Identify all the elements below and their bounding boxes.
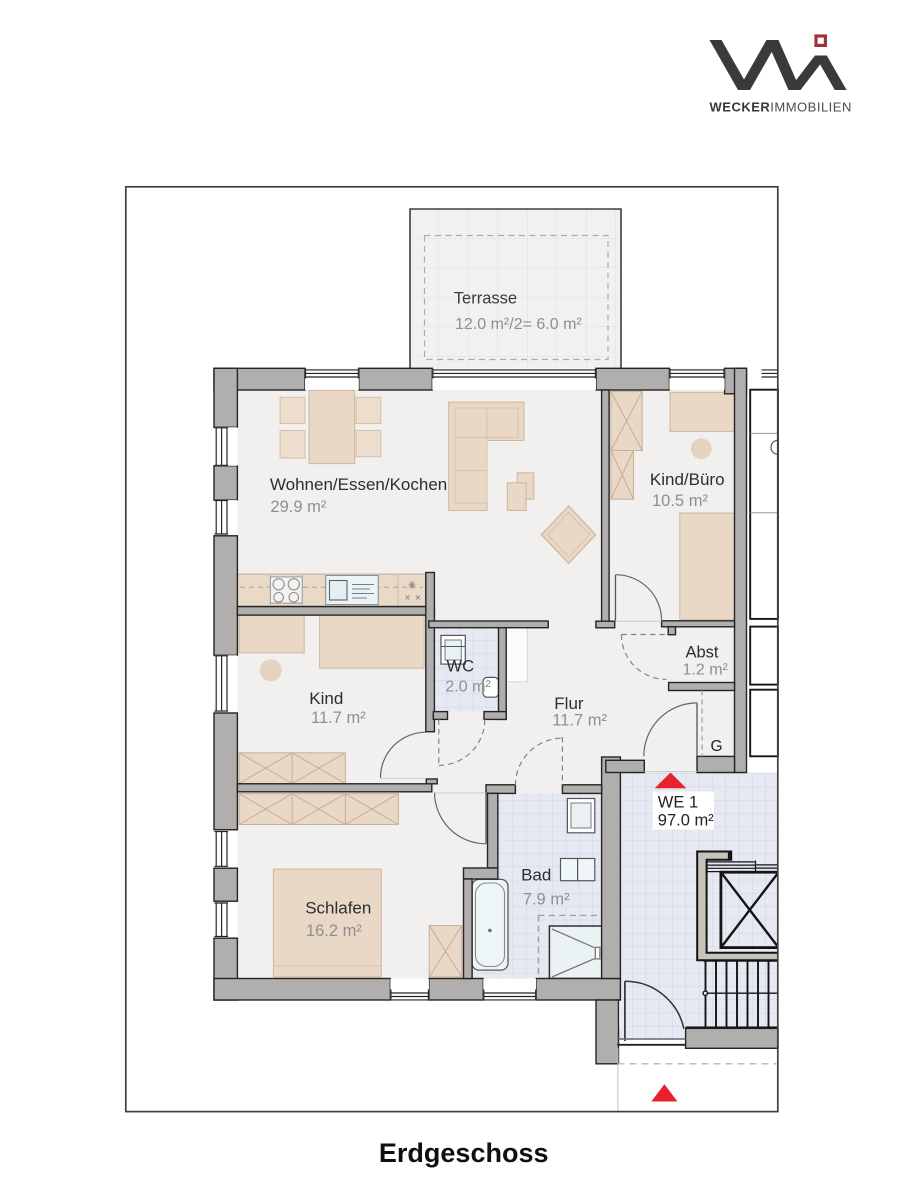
svg-text:10.5 m²: 10.5 m² bbox=[652, 492, 708, 510]
svg-text:29.9 m²: 29.9 m² bbox=[270, 498, 326, 516]
svg-text:12.0 m²/2= 6.0 m²: 12.0 m²/2= 6.0 m² bbox=[455, 316, 582, 333]
svg-text:Schlafen: Schlafen bbox=[305, 899, 371, 918]
svg-text:WC: WC bbox=[447, 658, 475, 676]
svg-text:Bad: Bad bbox=[521, 866, 551, 885]
svg-text:7.9 m²: 7.9 m² bbox=[523, 891, 570, 909]
svg-text:Wohnen/Essen/Kochen: Wohnen/Essen/Kochen bbox=[270, 475, 447, 494]
svg-text:WECKERIMMOBILIEN: WECKERIMMOBILIEN bbox=[710, 100, 852, 115]
svg-text:Erdgeschoss: Erdgeschoss bbox=[379, 1138, 549, 1168]
svg-text:Terrasse: Terrasse bbox=[454, 289, 517, 307]
svg-text:Kind/Büro: Kind/Büro bbox=[650, 470, 725, 489]
svg-text:97.0 m²: 97.0 m² bbox=[658, 812, 714, 830]
svg-text:16.2 m²: 16.2 m² bbox=[306, 922, 362, 940]
svg-text:2.0 m²: 2.0 m² bbox=[445, 679, 491, 696]
svg-text:Flur: Flur bbox=[554, 694, 584, 713]
svg-text:WE 1: WE 1 bbox=[658, 794, 698, 812]
svg-text:G: G bbox=[711, 738, 723, 755]
svg-text:11.7 m²: 11.7 m² bbox=[552, 712, 607, 730]
svg-text:Abst: Abst bbox=[686, 643, 719, 661]
svg-text:11.7 m²: 11.7 m² bbox=[311, 709, 366, 727]
svg-text:1.2 m²: 1.2 m² bbox=[683, 662, 729, 679]
svg-text:Kind: Kind bbox=[309, 689, 343, 708]
